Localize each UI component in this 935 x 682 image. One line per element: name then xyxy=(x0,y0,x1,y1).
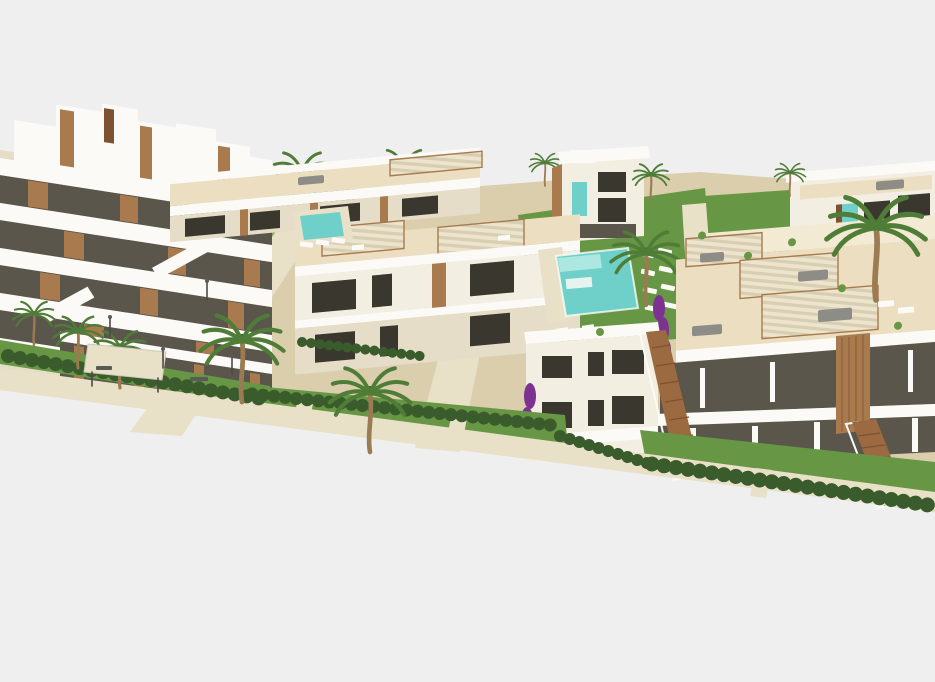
dark-window xyxy=(470,260,514,296)
wood-accent xyxy=(140,126,152,180)
wood-accent xyxy=(244,259,260,287)
small-pool xyxy=(300,212,344,240)
bougainvillea xyxy=(524,383,536,409)
bench xyxy=(96,366,112,370)
dark-window xyxy=(598,172,626,192)
white-mullion xyxy=(700,368,705,408)
wood-accent xyxy=(28,180,48,209)
white-pillar xyxy=(912,418,918,452)
wood-accent xyxy=(380,196,388,223)
dark-window xyxy=(612,350,644,374)
dark-window xyxy=(402,195,438,216)
architectural-render xyxy=(0,0,935,682)
teal-glass-panel xyxy=(572,182,587,216)
wood-accent xyxy=(240,209,248,236)
dark-window xyxy=(542,356,572,378)
dark-window xyxy=(598,198,626,222)
wood-accent xyxy=(120,195,138,224)
wood-accent xyxy=(432,263,446,314)
upper-small-pool xyxy=(292,206,353,248)
dark-window xyxy=(588,352,604,376)
wood-accent xyxy=(60,109,74,167)
bench xyxy=(190,377,208,381)
white-mullion xyxy=(770,362,775,402)
dark-window xyxy=(312,279,356,313)
roof-pergola xyxy=(570,150,596,163)
dark-window xyxy=(372,274,392,308)
white-mullion xyxy=(908,350,913,392)
potted-plant xyxy=(596,328,604,336)
dark-window xyxy=(470,313,510,347)
render-canvas xyxy=(0,0,935,682)
wood-slat-panel xyxy=(836,333,870,434)
wood-accent xyxy=(64,231,84,260)
wood-accent xyxy=(140,288,158,317)
wood-accent xyxy=(104,108,114,144)
dark-window xyxy=(250,210,280,231)
wood-accent xyxy=(40,272,60,301)
dark-window xyxy=(588,400,604,426)
dark-window xyxy=(612,396,644,424)
dark-window xyxy=(185,215,225,237)
